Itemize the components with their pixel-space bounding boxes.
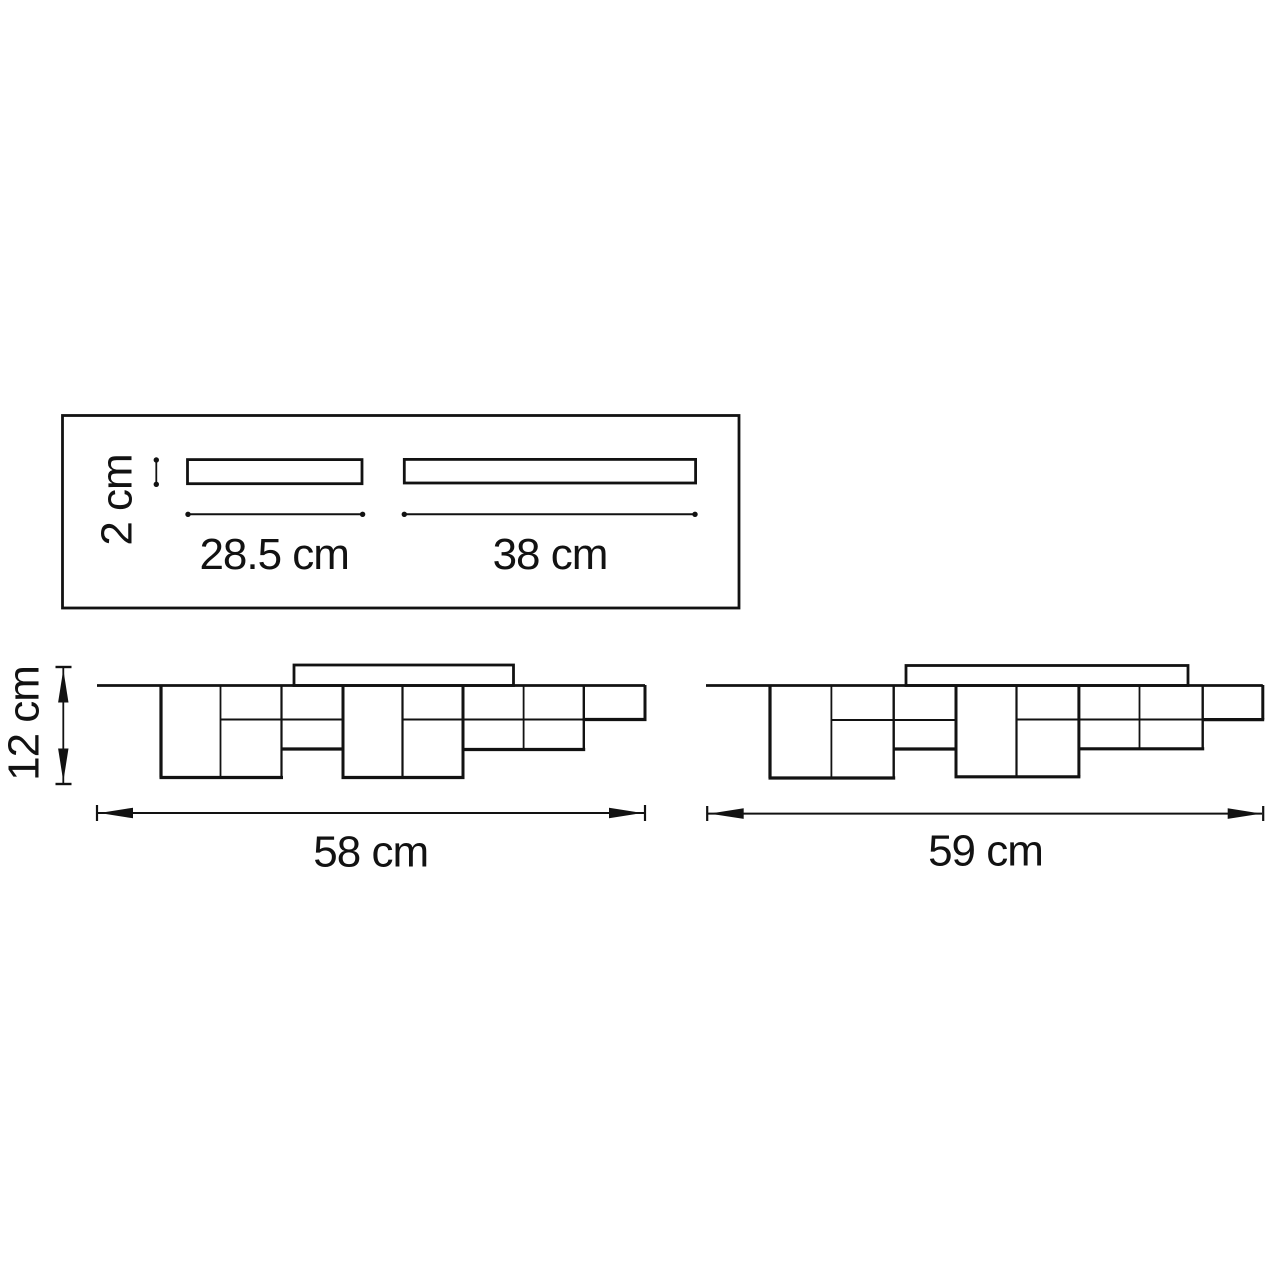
svg-text:59 cm: 59 cm xyxy=(928,827,1043,876)
svg-text:12 cm: 12 cm xyxy=(0,666,49,781)
svg-text:38 cm: 38 cm xyxy=(493,530,608,579)
svg-text:28.5 cm: 28.5 cm xyxy=(199,530,349,579)
svg-text:58 cm: 58 cm xyxy=(313,827,428,876)
svg-text:2 cm: 2 cm xyxy=(93,454,142,545)
